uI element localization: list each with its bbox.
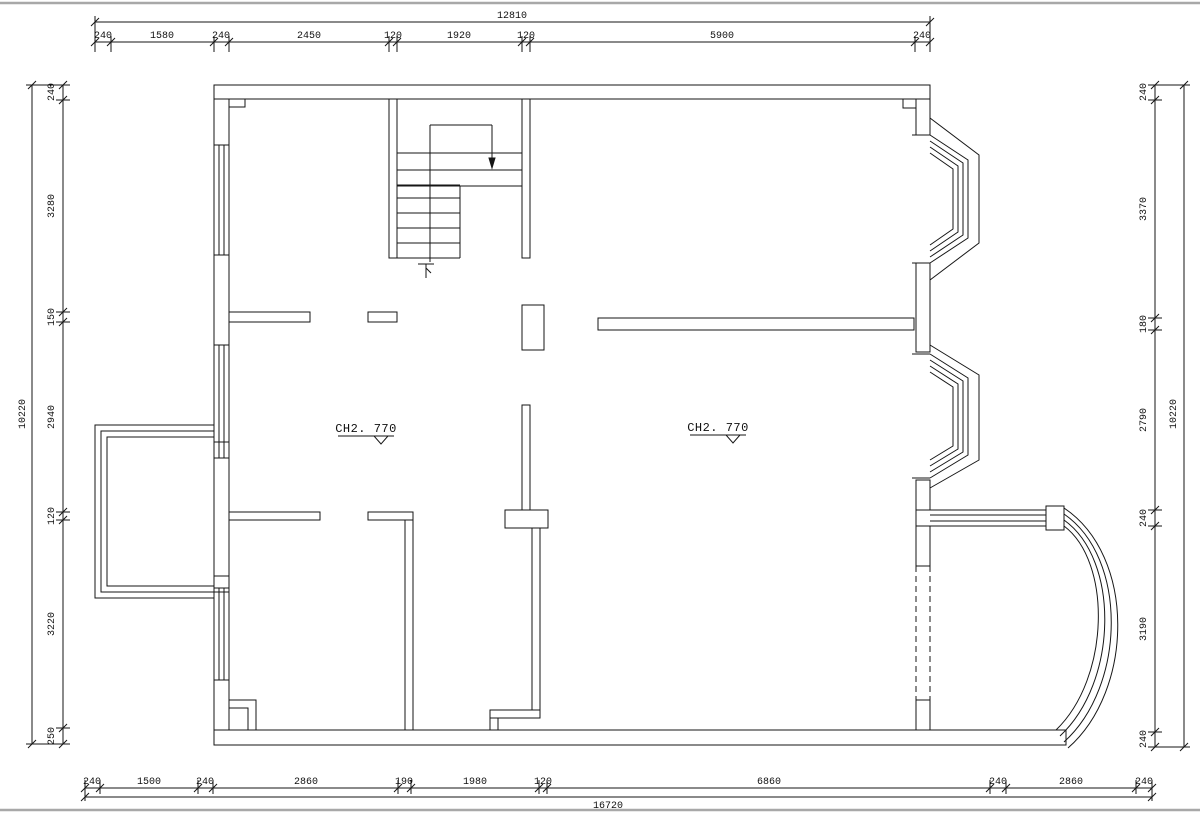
dim-label: 3370 [1139, 197, 1150, 221]
dim-label: 1980 [463, 777, 487, 788]
dim-label: 2860 [1059, 777, 1083, 788]
ceiling-height-text: CH2. 770 [687, 421, 749, 435]
dim-label: 3190 [1139, 617, 1150, 641]
dim-labels-top: 12810 240 1580 240 2450 120 1920 120 590… [94, 11, 931, 42]
dim-overall-top: 12810 [497, 11, 527, 22]
dim-label: 240 [47, 83, 58, 101]
dim-label: 240 [196, 777, 214, 788]
dim-label: 240 [83, 777, 101, 788]
dim-label: 1920 [447, 31, 471, 42]
dim-label: 240 [1139, 509, 1150, 527]
dim-overall-bottom: 16720 [593, 801, 623, 812]
floor-plan-drawing: 12810 240 1580 240 2450 120 1920 120 590… [0, 0, 1200, 829]
dim-label: 1500 [137, 777, 161, 788]
dim-label: 240 [94, 31, 112, 42]
outer-walls [214, 85, 1066, 745]
dim-overall-right: 10220 [1169, 399, 1180, 429]
dim-label: 2790 [1139, 408, 1150, 432]
dim-label: 120 [47, 507, 58, 525]
dim-label: 150 [47, 308, 58, 326]
dim-label: 120 [384, 31, 402, 42]
drawing-frame [0, 3, 1200, 810]
dim-label: 2860 [294, 777, 318, 788]
bay-window-top-right [912, 118, 979, 280]
dim-label: 240 [1135, 777, 1153, 788]
dim-label: 3220 [47, 612, 58, 636]
dim-label: 240 [989, 777, 1007, 788]
dim-label: 5900 [710, 31, 734, 42]
elevation-marker-icon [374, 436, 388, 444]
ceiling-height-text: CH2. 770 [335, 422, 397, 436]
ceiling-height-label-left: CH2. 770 [335, 422, 397, 444]
dim-label: 2940 [47, 405, 58, 429]
dim-label: 250 [47, 727, 58, 745]
dim-label: 3280 [47, 194, 58, 218]
curved-bay-window [916, 506, 1118, 748]
ceiling-height-label-right: CH2. 770 [687, 421, 749, 443]
interior-walls [229, 99, 914, 730]
left-wall-windows [214, 145, 229, 680]
dim-label: 1580 [150, 31, 174, 42]
staircase [397, 125, 522, 278]
dim-overall-left: 10220 [18, 399, 29, 429]
stair-down-glyph [418, 264, 434, 278]
wall-opening-dashed [916, 566, 930, 700]
dim-label: 190 [395, 777, 413, 788]
stair-down-arrow [489, 158, 495, 168]
dim-label: 180 [1139, 315, 1150, 333]
dim-labels-left: 10220 240 3280 150 2940 120 3220 250 [18, 83, 58, 745]
dim-labels-bottom: 16720 240 1500 240 2860 190 1980 120 686… [83, 777, 1153, 812]
dim-label: 240 [1139, 83, 1150, 101]
bay-window-mid-right [912, 345, 979, 488]
elevation-marker-icon [726, 435, 740, 443]
dim-label: 240 [212, 31, 230, 42]
dim-label: 120 [534, 777, 552, 788]
dim-labels-right: 10220 240 3370 180 2790 240 3190 240 [1139, 83, 1180, 748]
dim-label: 240 [1139, 730, 1150, 748]
dim-label: 120 [517, 31, 535, 42]
balcony [95, 425, 229, 598]
dim-label: 6860 [757, 777, 781, 788]
dim-label: 240 [913, 31, 931, 42]
dim-label: 2450 [297, 31, 321, 42]
